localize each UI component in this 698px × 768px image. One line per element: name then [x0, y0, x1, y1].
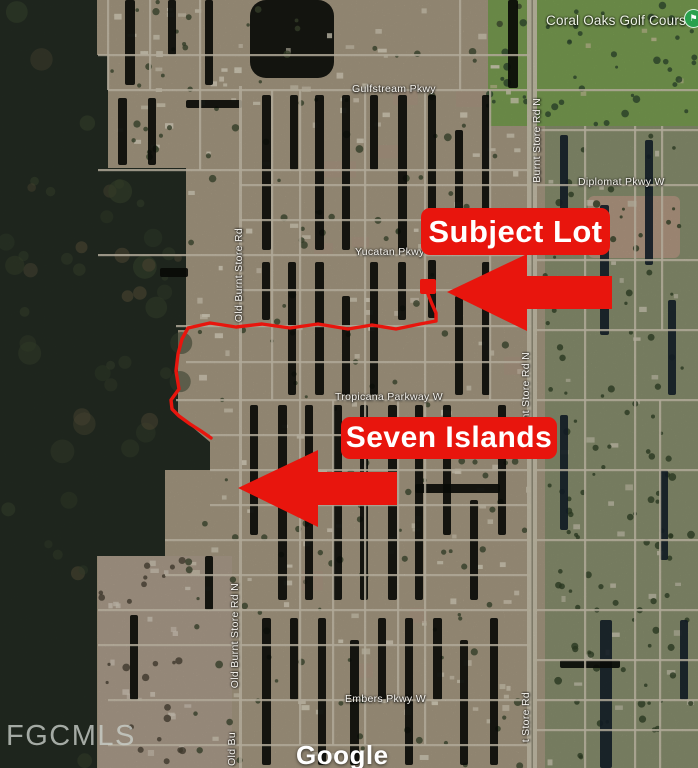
satellite-map[interactable]	[0, 0, 698, 768]
subject-lot-marker	[420, 279, 436, 294]
seven-islands-callout: Seven Islands	[341, 417, 557, 459]
subject-lot-callout-label: Subject Lot	[428, 214, 602, 250]
seven-islands-callout-label: Seven Islands	[346, 421, 553, 455]
satellite-grain	[0, 0, 698, 768]
mls-watermark: FGCMLS	[6, 720, 136, 753]
subject-lot-callout: Subject Lot	[421, 208, 610, 255]
map-viewport[interactable]: Coral Oaks Golf Course ⚑ Gulfstream Pkwy…	[0, 0, 698, 768]
golf-flag-icon[interactable]: ⚑	[684, 9, 698, 28]
google-attribution[interactable]: Google	[296, 740, 389, 768]
